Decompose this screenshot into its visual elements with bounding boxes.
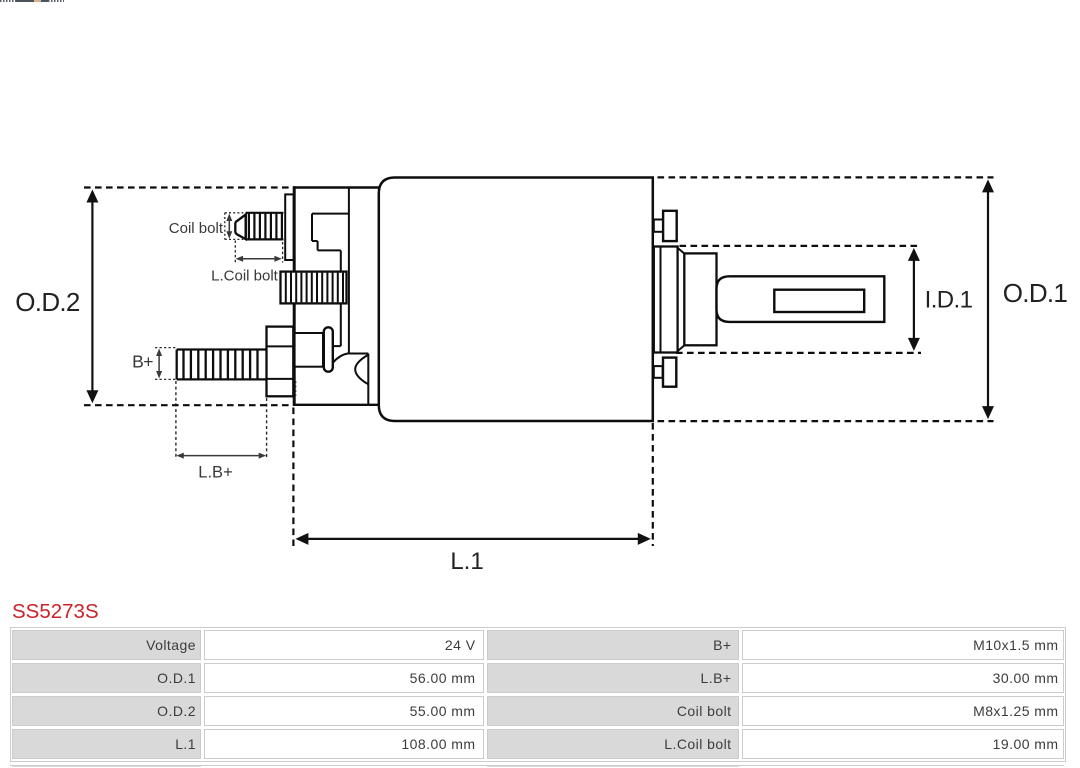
svg-text:I.D.1: I.D.1 xyxy=(925,287,973,314)
svg-text:L.1: L.1 xyxy=(450,548,483,575)
svg-text:B+: B+ xyxy=(132,352,153,372)
svg-text:O.D.1: O.D.1 xyxy=(1003,278,1068,308)
svg-text:L.B+: L.B+ xyxy=(198,464,232,482)
svg-text:O.D.2: O.D.2 xyxy=(15,287,80,317)
svg-text:Coil bolt: Coil bolt xyxy=(169,220,224,237)
svg-text:L.Coil bolt: L.Coil bolt xyxy=(211,268,279,285)
